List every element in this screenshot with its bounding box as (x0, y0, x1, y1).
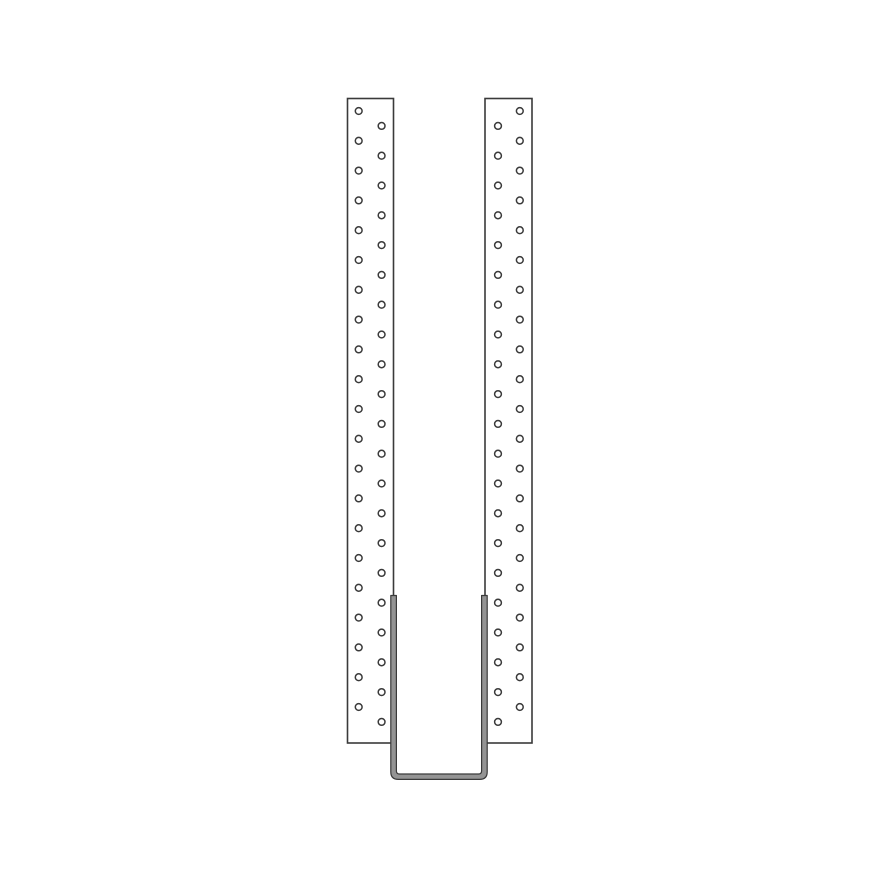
nail-hole (516, 555, 523, 562)
nail-hole (355, 167, 362, 174)
nail-hole (378, 599, 385, 606)
nail-hole (378, 540, 385, 547)
nail-hole (495, 421, 502, 428)
nail-hole (378, 570, 385, 577)
nail-hole (516, 376, 523, 383)
nail-hole (516, 525, 523, 532)
nail-hole (378, 182, 385, 189)
nail-hole (355, 584, 362, 591)
nail-hole (378, 510, 385, 517)
nail-hole (495, 212, 502, 219)
nail-hole (495, 361, 502, 368)
nail-hole (516, 286, 523, 293)
nail-hole (378, 152, 385, 159)
nail-hole (516, 644, 523, 651)
nail-hole (516, 584, 523, 591)
nail-hole (355, 406, 362, 413)
nail-hole (495, 510, 502, 517)
nail-hole (355, 495, 362, 502)
nail-hole (495, 242, 502, 249)
nail-hole (355, 614, 362, 621)
nail-hole (355, 137, 362, 144)
nail-hole (378, 421, 385, 428)
nail-hole (378, 272, 385, 279)
nail-hole (378, 689, 385, 696)
nail-hole (355, 227, 362, 234)
nail-hole (516, 257, 523, 264)
nail-hole (355, 644, 362, 651)
nail-hole (378, 361, 385, 368)
nail-hole (355, 346, 362, 353)
nail-hole (495, 272, 502, 279)
nail-hole (516, 346, 523, 353)
nail-hole (495, 301, 502, 308)
nail-hole (495, 331, 502, 338)
nail-hole (378, 331, 385, 338)
nail-hole (516, 197, 523, 204)
nail-hole (355, 108, 362, 115)
nail-hole (355, 674, 362, 681)
nail-hole (378, 391, 385, 398)
nail-hole (355, 286, 362, 293)
nail-hole (516, 167, 523, 174)
nail-hole (516, 137, 523, 144)
nail-hole (495, 540, 502, 547)
nail-hole (355, 197, 362, 204)
nail-hole (378, 450, 385, 457)
stirrup-strap (391, 596, 487, 780)
nail-hole (378, 212, 385, 219)
nail-hole (378, 480, 385, 487)
nail-hole (495, 152, 502, 159)
nail-hole (378, 629, 385, 636)
nail-hole (355, 555, 362, 562)
nail-hole (378, 301, 385, 308)
nail-hole (355, 435, 362, 442)
nail-hole (516, 435, 523, 442)
nail-hole (495, 480, 502, 487)
nail-hole (495, 599, 502, 606)
nail-hole (495, 689, 502, 696)
drawing-canvas (0, 0, 880, 880)
nail-hole (516, 316, 523, 323)
nail-hole (516, 406, 523, 413)
nail-hole (516, 227, 523, 234)
nail-hole (378, 659, 385, 666)
nail-hole (516, 108, 523, 115)
nail-hole (495, 391, 502, 398)
nail-hole (355, 525, 362, 532)
nail-hole (495, 570, 502, 577)
nail-hole (516, 495, 523, 502)
nail-hole (355, 376, 362, 383)
nail-hole (378, 719, 385, 726)
nail-hole (378, 242, 385, 249)
nail-hole (355, 465, 362, 472)
nail-hole (495, 659, 502, 666)
nail-hole (355, 257, 362, 264)
nail-hole (355, 704, 362, 711)
nail-hole (378, 123, 385, 130)
nail-hole (516, 465, 523, 472)
nail-hole (495, 182, 502, 189)
joist-hanger-diagram (0, 0, 880, 880)
nail-hole (495, 629, 502, 636)
nail-hole (495, 450, 502, 457)
nail-hole (495, 719, 502, 726)
nail-hole (516, 614, 523, 621)
nail-hole (495, 123, 502, 130)
nail-hole (516, 674, 523, 681)
left-plate-flange (348, 99, 394, 744)
nail-hole (355, 316, 362, 323)
right-plate-flange (485, 99, 532, 744)
nail-hole (516, 704, 523, 711)
